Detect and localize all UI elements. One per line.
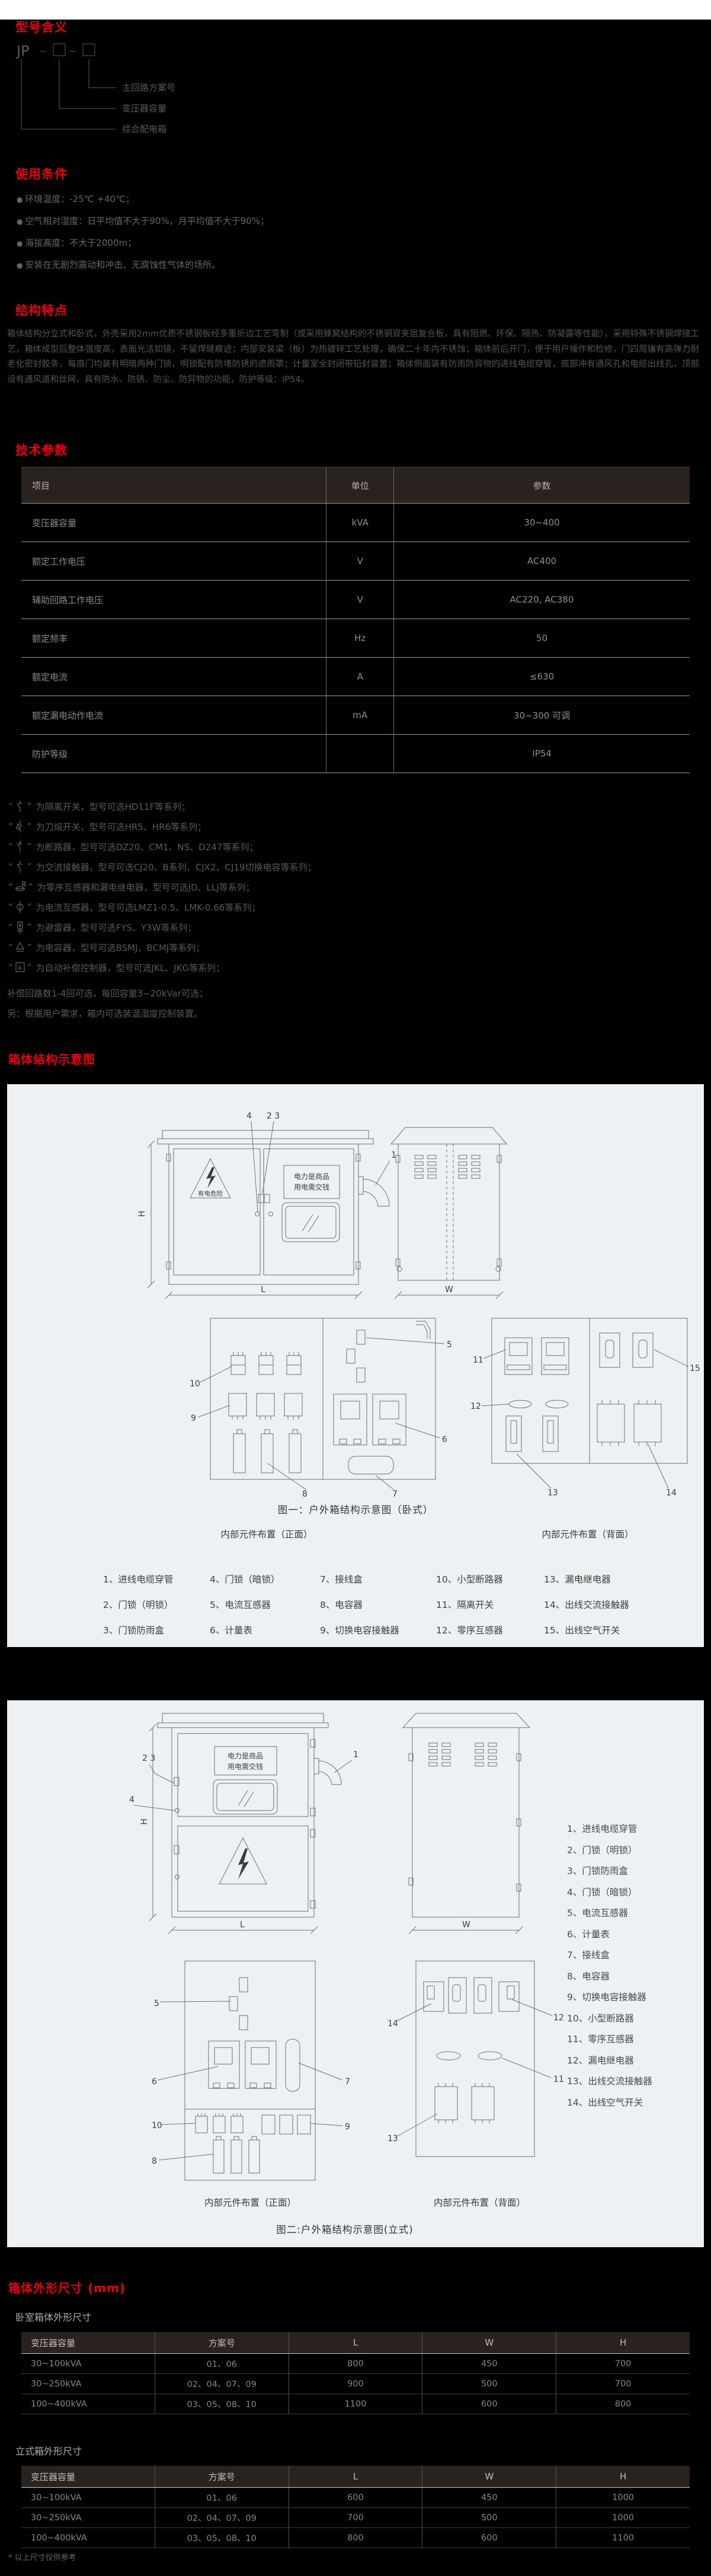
svg-text:用电需交钱: 用电需交钱	[228, 1762, 263, 1771]
vent-grille	[415, 1155, 480, 1178]
mini-breakers	[196, 2113, 243, 2133]
junction-box	[348, 1456, 393, 1474]
legend-item: 11、零序互感器	[567, 2029, 702, 2050]
callout-2-3: 2 3	[267, 1111, 280, 1121]
callout-1: 1	[353, 1750, 358, 1760]
fig1-side-body	[398, 1144, 499, 1280]
top-white-strip	[0, 0, 711, 20]
model-code-prefix: JP	[15, 43, 30, 59]
section-title-tech: 技术参数	[15, 441, 68, 459]
section-title-usage: 使用条件	[15, 165, 68, 182]
zero-sequence-ct	[478, 2052, 502, 2060]
tech-table-row: 辅助回路工作电压VAC220, AC380	[21, 580, 690, 619]
dim-W: W	[462, 1920, 470, 1930]
note-item: 为零序互感器和漏电继电器，型号可选JD、LLJ等系列；	[8, 877, 316, 897]
fig2-interior-back	[416, 1961, 534, 2157]
vent-grille	[429, 1743, 497, 1766]
legend-item: 12、零序互感器	[436, 1623, 544, 1636]
callout-8: 8	[152, 2157, 157, 2166]
legend-item: 4、门锁（暗锁）	[210, 1572, 320, 1585]
svg-text:电力是商品: 电力是商品	[294, 1172, 329, 1181]
tech-table-row: 变压器容量kVA30~400	[21, 503, 690, 542]
dims-table-horizontal: 变压器容量方案号 LWH 30~100kVA01、06800450700 30~…	[21, 2332, 690, 2414]
dim-L: L	[261, 1285, 265, 1295]
fig2-side-body	[412, 1728, 519, 1917]
danger-text: 有电危险	[198, 1190, 223, 1197]
outgoing-breakers	[600, 1333, 653, 1367]
legend-item: 13、漏电继电器	[544, 1572, 696, 1585]
callout-8: 8	[302, 1489, 308, 1499]
dims-table-row: 100~400kVA03、05、08、101100600800	[21, 2394, 690, 2414]
callout-13: 13	[387, 2134, 398, 2144]
cable-inlet-pipe	[358, 1177, 363, 1194]
figure2-back-caption: 内部元件布置（背面）	[395, 2196, 564, 2209]
callout-2-3: 2 3	[142, 1754, 155, 1763]
legend-item: 3、门锁防雨盒	[103, 1623, 210, 1636]
compensation-controller-icon: k	[8, 961, 32, 974]
dims-table-row: 30~100kVA01、06800450700	[21, 2354, 690, 2374]
capacitors	[213, 2136, 260, 2173]
dim-H: H	[137, 1210, 147, 1217]
isolator-switch-icon	[8, 800, 32, 813]
legend-item: 13、出线交流接触器	[567, 2071, 702, 2093]
zero-sequence-ct	[509, 1401, 531, 1408]
figure1-panel: 有电危险 电力是商品 用电需交钱 4 2 3 1	[7, 1084, 704, 1647]
legend-item: 2、门锁（明锁）	[567, 1840, 702, 1861]
note-item: 为隔离开关，型号可选HD11F等系列；	[8, 796, 316, 816]
model-label-box: 综合配电箱	[122, 124, 166, 134]
figure1-front-caption: 内部元件布置（正面）	[178, 1527, 355, 1540]
outgoing-air-switches	[424, 1978, 519, 2013]
dim-W: W	[445, 1285, 453, 1295]
symbol-notes: 为隔离开关，型号可选HD11F等系列； 为刀熔开关，型号可选HR5、HR6等系列…	[8, 796, 316, 978]
callout-7: 7	[345, 2077, 350, 2087]
section-title-structure-diagrams: 箱体结构示意图	[8, 1050, 95, 1067]
callout-7: 7	[392, 1489, 398, 1499]
energy-meters	[209, 2041, 276, 2088]
usage-bullet: 环境温度：-25℃ +40℃；	[17, 188, 269, 210]
legend-item: 1、进线电缆穿管	[567, 1819, 702, 1840]
tech-table-header: 项目 单位 参数	[21, 467, 690, 503]
legend-item: 1、进线电缆穿管	[103, 1572, 210, 1585]
dims-subtitle-horizontal: 卧室箱体外形尺寸	[15, 2309, 91, 2324]
dims-table-header: 变压器容量方案号 LWH	[21, 2466, 690, 2488]
tech-table-row: 额定工作电压VAC400	[21, 542, 690, 580]
fig1-side-cap	[391, 1127, 507, 1144]
callout-14: 14	[666, 1488, 677, 1498]
figure1-caption: 图一：户外箱结构示意图（卧式）	[7, 1502, 704, 1516]
tech-table: 项目 单位 参数 变压器容量kVA30~400 额定工作电压VAC400 辅助回…	[21, 467, 690, 773]
callout-11: 11	[553, 2075, 564, 2084]
tech-table-row: 额定电流A≤630	[21, 657, 690, 696]
usage-bullets: 环境温度：-25℃ +40℃； 空气相对湿度：日平均值不大于90%，月平均值不大…	[17, 188, 269, 276]
structure-paragraph: 箱体结构分立式和卧式，外壳采用2mm优质不锈钢板经多重折边工艺弯制（或采用蜂窝结…	[7, 327, 699, 387]
capacitor-contactors	[229, 1393, 302, 1420]
zero-sequence-ct-icon	[8, 880, 33, 893]
dim-L: L	[240, 1920, 245, 1930]
dims-table-row: 30~100kVA01、066004501000	[21, 2488, 690, 2508]
zero-sequence-ct	[437, 2052, 460, 2060]
dims-table-row: 100~400kVA03、05、08、108006001100	[21, 2528, 690, 2548]
figure1-legend: 1、进线电缆穿管 4、门锁（暗锁） 7、接线盒 10、小型断路器 13、漏电继电…	[103, 1572, 696, 1636]
section-title-structure: 结构特点	[15, 301, 68, 319]
legend-item: 7、接线盒	[567, 1945, 702, 1966]
lightning-bolt-icon	[238, 1848, 249, 1879]
note-item: 为电容器，型号可选BSMJ、BCMJ等系列；	[8, 937, 316, 957]
usage-bullet: 安装在无剧烈震动和冲击、无腐蚀性气体的场所。	[17, 254, 269, 276]
fig2-side-cap	[403, 1713, 530, 1728]
note-item: 为刀熔开关，型号可选HR5、HR6等系列；	[8, 816, 316, 837]
callout-9: 9	[345, 2122, 350, 2132]
dims-table-row: 30~250kVA02、04、07、097005001000	[21, 2508, 690, 2528]
callout-6: 6	[442, 1435, 447, 1444]
ac-contactor-icon	[8, 860, 32, 873]
tech-table-row: 额定漏电动作电流mA30~300 可调	[21, 696, 690, 734]
callout-6: 6	[152, 2077, 157, 2087]
svg-text:－: －	[39, 47, 47, 57]
callout-4: 4	[246, 1111, 252, 1121]
legend-item: 7、接线盒	[320, 1572, 436, 1585]
note-item: 为断路器，型号可选DZ20、CM1、NS、D247等系列；	[8, 837, 316, 857]
legend-item: 4、门锁（暗锁）	[567, 1882, 702, 1904]
knife-fuse-switch-icon	[8, 820, 32, 833]
callout-9: 9	[191, 1414, 196, 1423]
usage-bullet: 空气相对湿度：日平均值不大于90%，月平均值不大于90%；	[17, 210, 269, 232]
legend-item: 5、电流互感器	[210, 1598, 320, 1611]
svg-text:k: k	[18, 964, 23, 972]
current-transformer-icon	[8, 901, 32, 914]
model-label-capacity: 变压器容量	[122, 103, 166, 114]
legend-item: 14、出线空气开关	[567, 2093, 702, 2114]
capacitor-icon	[8, 941, 32, 954]
legend-item: 3、门锁防雨盒	[567, 1861, 702, 1882]
legend-item: 12、漏电继电器	[567, 2050, 702, 2072]
legend-item: 5、电流互感器	[567, 1903, 702, 1924]
meter-window	[282, 1203, 340, 1242]
model-box-scheme	[83, 44, 95, 56]
cable-inlet-pipe	[314, 1758, 319, 1774]
callout-12: 12	[470, 1402, 481, 1411]
callout-13: 13	[547, 1488, 558, 1498]
fig2-interior-front	[185, 1961, 315, 2180]
callout-11: 11	[473, 1356, 483, 1365]
leakage-relays	[506, 1416, 558, 1452]
zero-sequence-ct	[546, 1401, 568, 1408]
svg-text:－: －	[69, 47, 77, 57]
section-title-dimensions: 箱体外形尺寸 (mm)	[8, 2279, 126, 2296]
dims-table-vertical: 变压器容量方案号 LWH 30~100kVA01、066004501000 30…	[21, 2466, 690, 2548]
lightning-bolt-icon	[206, 1167, 216, 1188]
svg-text:电力是商品: 电力是商品	[228, 1751, 263, 1760]
meter-window	[213, 1780, 277, 1814]
tech-table-row: 防护等级IP54	[21, 734, 690, 773]
figure2-front-caption: 内部元件布置（正面）	[166, 2196, 335, 2209]
callout-14: 14	[387, 2019, 398, 2029]
note-extra-2: 另：根据用户需求，箱内可选装温湿度控制装置。	[7, 1007, 203, 1020]
dims-subtitle-vertical: 立式箱外形尺寸	[15, 2443, 82, 2458]
callout-5: 5	[447, 1340, 452, 1350]
dims-table-header: 变压器容量方案号 LWH	[21, 2332, 690, 2354]
model-code-diagram: JP － － 主回路方案号 变压器容量 综合配电箱	[15, 39, 442, 146]
capacitor-contactors	[262, 2115, 310, 2134]
legend-item: 6、计量表	[210, 1623, 320, 1636]
mini-breakers	[231, 1352, 301, 1374]
note-item: 为避雷器，型号可选FYS、Y3W等系列；	[8, 917, 316, 937]
callout-12: 12	[553, 2013, 564, 2023]
isolation-switches	[505, 1338, 569, 1374]
energy-meters	[334, 1394, 406, 1445]
note-extra-1: 补偿回路数1-4回可选，每回容量3~20kVar可选；	[7, 987, 208, 999]
legend-item: 9、切换电容接触器	[320, 1623, 436, 1636]
figure2-legend: 1、进线电缆穿管 2、门锁（明锁） 3、门锁防雨盒 4、门锁（暗锁） 5、电流互…	[567, 1819, 702, 2113]
figure2-caption: 图二:户外箱结构示意图(立式)	[197, 2222, 493, 2236]
legend-item: 6、计量表	[567, 1924, 702, 1946]
callout-15: 15	[690, 1364, 700, 1373]
model-box-capacity	[53, 44, 65, 56]
note-item: 为电流互感器，型号可选LMZ1-0.5、LMK-0.66等系列；	[8, 897, 316, 917]
legend-item: 8、电容器	[567, 1966, 702, 1988]
callout-10: 10	[152, 2121, 162, 2130]
legend-item: 2、门锁（明锁）	[103, 1598, 210, 1611]
tech-table-row: 额定频率Hz50	[21, 619, 690, 657]
usage-bullet: 海拔高度：不大于2000m；	[17, 232, 269, 254]
legend-item: 14、出线交流接触器	[544, 1598, 696, 1611]
legend-item: 8、电容器	[320, 1598, 436, 1611]
dims-footnote: * 以上尺寸仅供参考	[8, 2551, 76, 2562]
figure1-back-caption: 内部元件布置（背面）	[499, 1527, 677, 1540]
circuit-breaker-icon	[8, 840, 32, 853]
legend-item: 15、出线空气开关	[544, 1623, 696, 1636]
legend-item: 9、切换电容接触器	[567, 1987, 702, 2008]
legend-item: 10、小型断路器	[567, 2008, 702, 2030]
capacitors	[233, 1430, 301, 1473]
model-label-scheme: 主回路方案号	[122, 82, 175, 93]
dims-table-row: 30~250kVA02、04、07、09900500700	[21, 2374, 690, 2394]
current-transformers	[347, 1330, 365, 1382]
junction-box	[286, 2039, 300, 2091]
current-transformers	[229, 1978, 248, 2030]
legend-item: 10、小型断路器	[436, 1572, 544, 1585]
catalog-page: 型号含义 JP － － 主回路方案号 变压器容量 综合配电箱 使用条件 环境温度…	[0, 0, 711, 2576]
slogan-plate	[284, 1165, 340, 1199]
fig1-right-door	[264, 1149, 354, 1275]
outgoing-contactors	[597, 1400, 661, 1446]
arrester-icon	[8, 921, 32, 934]
callout-10: 10	[190, 1379, 200, 1389]
dim-H: H	[140, 1818, 149, 1825]
section-title-model-meaning: 型号含义	[15, 18, 68, 36]
svg-text:用电需交钱: 用电需交钱	[294, 1183, 329, 1191]
figure1-drawing: 有电危险 电力是商品 用电需交钱 4 2 3 1	[7, 1084, 704, 1647]
note-item: k 为自动补偿控制器，型号可选JKL、JKG等系列；	[8, 957, 316, 978]
callout-4: 4	[129, 1795, 134, 1805]
note-item: 为交流接触器，型号可选CJ20、B系列，CJX2、CJ19切换电容等系列；	[8, 857, 316, 877]
fig1-left-door	[174, 1149, 260, 1275]
figure2-panel: 电力是商品 用电需交钱 2 3 4 1 H	[7, 1700, 704, 2247]
callout-5: 5	[154, 1999, 159, 2008]
outgoing-contactors	[435, 2083, 494, 2123]
legend-item: 11、隔离开关	[436, 1598, 544, 1611]
